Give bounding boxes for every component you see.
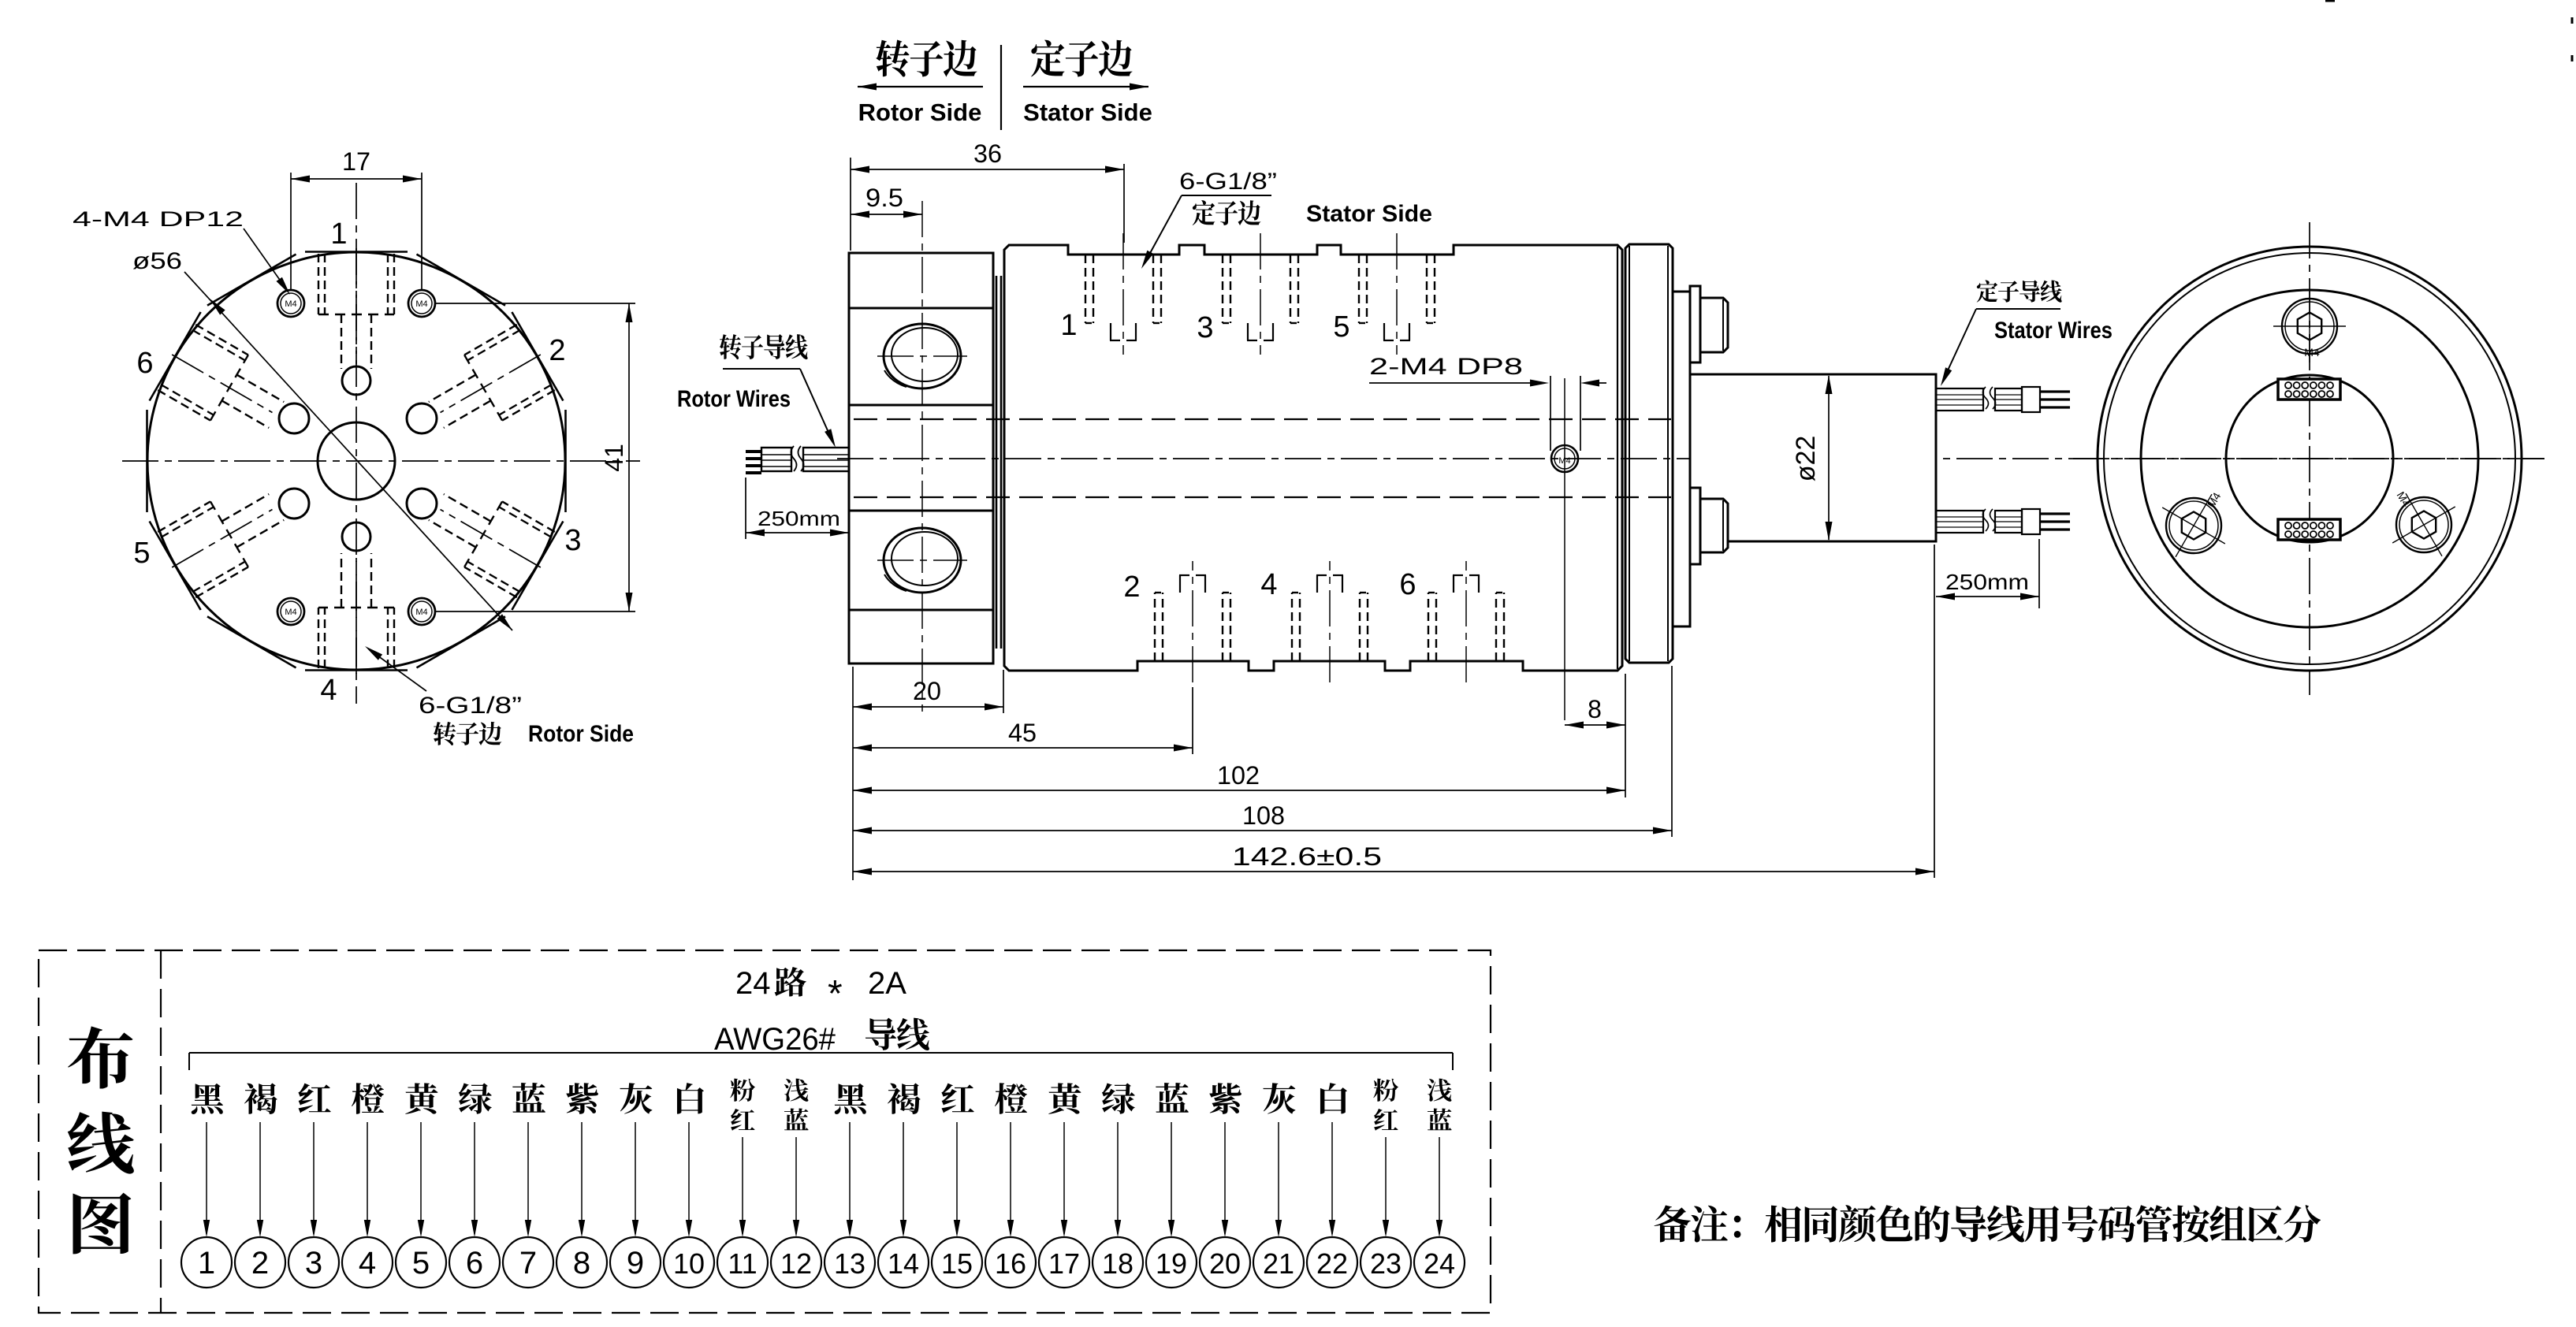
svg-text:5: 5 bbox=[1333, 310, 1349, 344]
svg-text:6-G1/8”: 6-G1/8” bbox=[1179, 169, 1277, 195]
svg-text:11: 11 bbox=[728, 1247, 757, 1280]
svg-text:ø22: ø22 bbox=[1791, 436, 1821, 482]
svg-text:ø56: ø56 bbox=[132, 248, 182, 274]
svg-text:16: 16 bbox=[995, 1247, 1026, 1280]
svg-text:2: 2 bbox=[251, 1246, 269, 1281]
svg-text:1: 1 bbox=[330, 217, 347, 251]
svg-text:102: 102 bbox=[1217, 761, 1260, 790]
svg-text:36: 36 bbox=[973, 139, 1002, 168]
svg-text:6: 6 bbox=[1399, 568, 1416, 601]
svg-text:14: 14 bbox=[888, 1247, 919, 1280]
svg-text:17: 17 bbox=[342, 147, 370, 176]
svg-text:20: 20 bbox=[1209, 1247, 1241, 1280]
svg-text:9: 9 bbox=[627, 1246, 644, 1281]
svg-text:17: 17 bbox=[1048, 1247, 1080, 1280]
svg-text:M4: M4 bbox=[415, 608, 427, 617]
svg-text:20: 20 bbox=[913, 677, 941, 705]
svg-text:12: 12 bbox=[780, 1247, 812, 1280]
svg-text:10: 10 bbox=[673, 1247, 705, 1280]
svg-text:7: 7 bbox=[519, 1246, 537, 1281]
svg-text:3: 3 bbox=[1197, 311, 1213, 344]
svg-text:108: 108 bbox=[1242, 801, 1285, 830]
svg-text:21: 21 bbox=[1263, 1247, 1294, 1280]
svg-text:6-G1/8”: 6-G1/8” bbox=[419, 693, 522, 719]
svg-text:5: 5 bbox=[133, 537, 150, 570]
svg-text:Stator Side: Stator Side bbox=[1023, 99, 1152, 126]
svg-text:M4: M4 bbox=[2304, 346, 2320, 359]
svg-text:23: 23 bbox=[1370, 1247, 1402, 1280]
svg-text:250mm: 250mm bbox=[758, 507, 840, 530]
svg-text:Stator Side: Stator Side bbox=[1306, 201, 1432, 227]
svg-text:4: 4 bbox=[1260, 568, 1277, 601]
svg-text:4: 4 bbox=[320, 674, 337, 707]
svg-text:2: 2 bbox=[549, 334, 565, 367]
svg-text:8: 8 bbox=[573, 1246, 590, 1281]
svg-text:M4: M4 bbox=[285, 299, 296, 309]
svg-text:6: 6 bbox=[466, 1246, 483, 1281]
svg-text:142.6±0.5: 142.6±0.5 bbox=[1232, 842, 1382, 871]
svg-text:M4: M4 bbox=[285, 608, 296, 617]
svg-text:9.5: 9.5 bbox=[865, 184, 903, 212]
svg-text:2: 2 bbox=[1123, 571, 1140, 604]
svg-text:1: 1 bbox=[1060, 309, 1077, 342]
svg-text:4: 4 bbox=[359, 1246, 376, 1281]
svg-text:24: 24 bbox=[735, 966, 771, 1001]
svg-text:M4: M4 bbox=[415, 299, 427, 309]
svg-text:3: 3 bbox=[305, 1246, 322, 1281]
svg-text:15: 15 bbox=[941, 1247, 973, 1280]
svg-text:Rotor Wires: Rotor Wires bbox=[677, 386, 791, 412]
svg-text:8: 8 bbox=[1588, 695, 1602, 723]
svg-text:45: 45 bbox=[1008, 719, 1037, 747]
svg-text:6: 6 bbox=[136, 347, 153, 380]
svg-text:13: 13 bbox=[834, 1247, 865, 1280]
svg-text:41: 41 bbox=[600, 444, 628, 472]
svg-text:3: 3 bbox=[564, 524, 581, 557]
svg-text:1: 1 bbox=[198, 1246, 215, 1281]
svg-text:Stator Wires: Stator Wires bbox=[1994, 318, 2113, 344]
svg-text:4-M4 DP12: 4-M4 DP12 bbox=[73, 207, 244, 231]
svg-text:2A: 2A bbox=[868, 966, 906, 1001]
svg-text:Rotor Side: Rotor Side bbox=[528, 721, 634, 747]
svg-text:2-M4 DP8: 2-M4 DP8 bbox=[1369, 354, 1523, 380]
svg-text:*: * bbox=[828, 973, 843, 1015]
svg-text:AWG26#: AWG26# bbox=[714, 1022, 836, 1057]
svg-text:Rotor Side: Rotor Side bbox=[858, 99, 982, 126]
svg-text:18: 18 bbox=[1102, 1247, 1134, 1280]
svg-text:19: 19 bbox=[1156, 1247, 1187, 1280]
svg-text:24: 24 bbox=[1424, 1247, 1455, 1280]
svg-text:250mm: 250mm bbox=[1945, 570, 2029, 594]
svg-text:22: 22 bbox=[1316, 1247, 1348, 1280]
svg-text:5: 5 bbox=[412, 1246, 430, 1281]
